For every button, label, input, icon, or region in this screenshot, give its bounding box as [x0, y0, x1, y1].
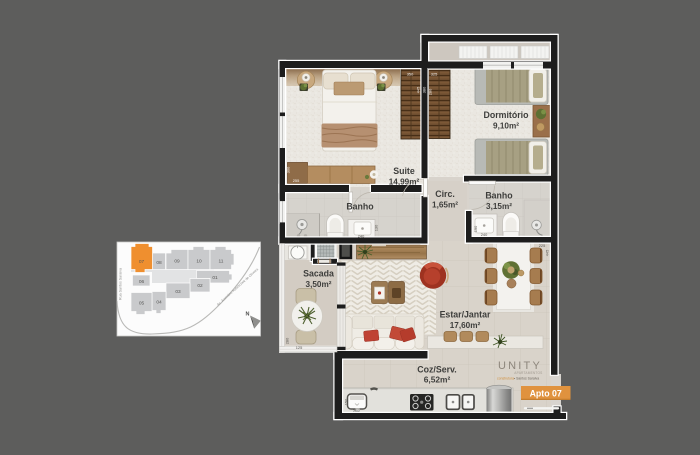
svg-text:07: 07	[139, 259, 145, 265]
svg-text:01: 01	[212, 275, 218, 281]
svg-text:09: 09	[174, 259, 180, 265]
svg-text:325: 325	[431, 72, 438, 77]
svg-text:Banho: Banho	[346, 202, 374, 212]
svg-text:05: 05	[139, 301, 145, 307]
svg-text:300: 300	[286, 166, 291, 173]
svg-text:APARTAMENTOS: APARTAMENTOS	[514, 371, 542, 375]
svg-text:02: 02	[197, 283, 203, 289]
svg-text:6,52m²: 6,52m²	[424, 375, 451, 385]
svg-text:N: N	[246, 312, 250, 318]
svg-text:Circ.: Circ.	[435, 189, 455, 199]
svg-text:Suite: Suite	[393, 166, 415, 176]
svg-text:380: 380	[422, 86, 427, 93]
svg-text:445: 445	[545, 250, 550, 257]
svg-text:08: 08	[156, 260, 162, 266]
svg-text:Apto 07: Apto 07	[530, 388, 562, 398]
svg-text:construtora: construtora	[497, 377, 514, 381]
svg-text:130: 130	[374, 224, 379, 231]
svg-text:3,50m²: 3,50m²	[306, 280, 332, 289]
svg-text:280: 280	[428, 88, 433, 95]
svg-text:190: 190	[473, 225, 478, 232]
svg-text:Rua Santos Saraiva: Rua Santos Saraiva	[119, 268, 123, 300]
svg-text:240: 240	[358, 233, 365, 238]
svg-text:1,65m²: 1,65m²	[432, 201, 458, 210]
svg-text:10: 10	[196, 259, 202, 265]
svg-text:Dormitório: Dormitório	[484, 110, 530, 120]
svg-text:Estar/Jantar: Estar/Jantar	[440, 310, 491, 320]
svg-text:03: 03	[175, 289, 181, 295]
svg-text:350: 350	[407, 72, 414, 77]
svg-text:Sacada: Sacada	[303, 269, 334, 279]
svg-text:500: 500	[353, 408, 360, 413]
svg-text:150: 150	[344, 398, 349, 405]
svg-text:04: 04	[156, 300, 162, 306]
svg-text:14,99m²: 14,99m²	[389, 178, 420, 187]
svg-text:3,15m²: 3,15m²	[486, 202, 512, 211]
svg-text:9,10m²: 9,10m²	[493, 122, 519, 131]
svg-text:240: 240	[481, 232, 488, 237]
svg-text:06: 06	[139, 279, 145, 285]
svg-text:11: 11	[219, 259, 224, 265]
svg-text:225: 225	[539, 243, 546, 248]
svg-text:Banho: Banho	[485, 191, 513, 201]
svg-text:17,60m²: 17,60m²	[450, 321, 481, 330]
svg-text:255: 255	[293, 178, 300, 183]
svg-text:Coz/Serv.: Coz/Serv.	[417, 365, 456, 375]
svg-text:125: 125	[296, 345, 303, 350]
svg-text:280: 280	[285, 337, 290, 344]
svg-text:445: 445	[416, 87, 421, 94]
svg-text:• Santos Saraiva: • Santos Saraiva	[514, 377, 539, 381]
